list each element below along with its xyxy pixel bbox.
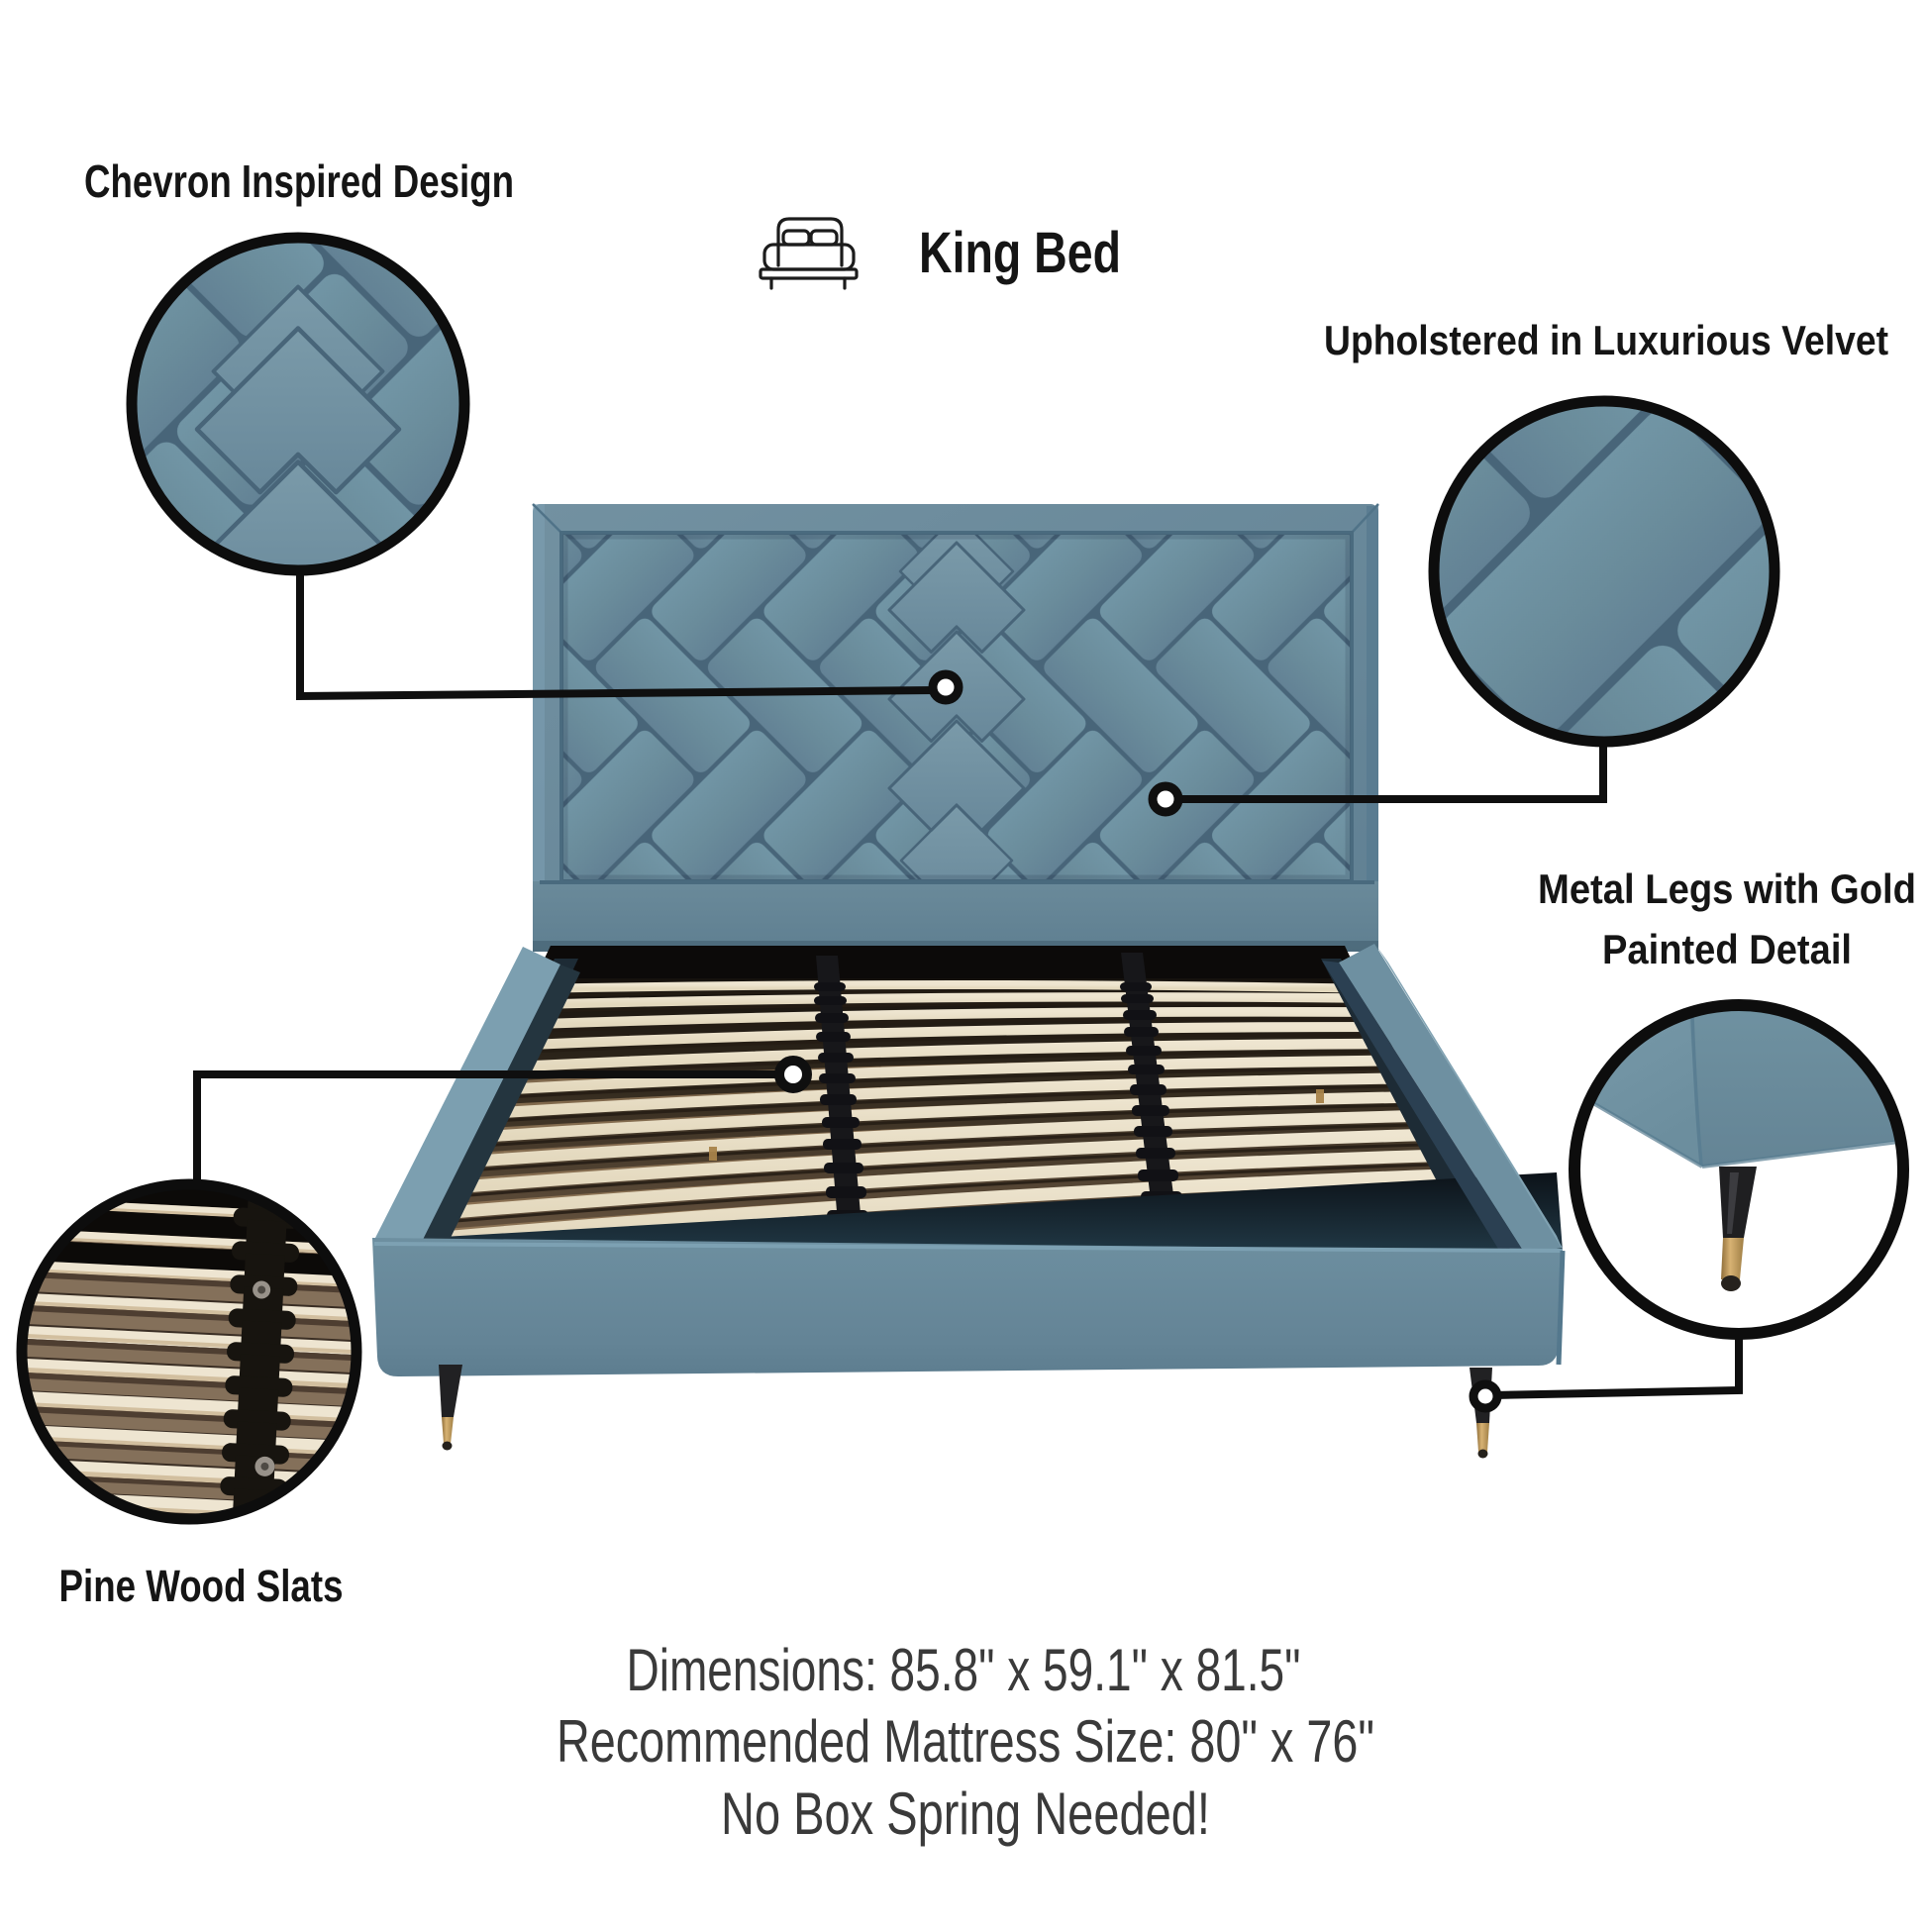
svg-text:Recommended Mattress Size: 80": Recommended Mattress Size: 80" x 76"	[557, 1708, 1374, 1775]
svg-text:Dimensions: 85.8" x 59.1" x 81: Dimensions: 85.8" x 59.1" x 81.5"	[627, 1637, 1301, 1703]
svg-text:Metal Legs with Gold: Metal Legs with Gold	[1538, 865, 1916, 912]
svg-text:Chevron Inspired Design: Chevron Inspired Design	[84, 155, 514, 207]
svg-text:No Box Spring Needed!: No Box Spring Needed!	[721, 1780, 1210, 1847]
svg-text:Pine Wood Slats: Pine Wood Slats	[59, 1561, 344, 1611]
svg-text:Painted Detail: Painted Detail	[1602, 926, 1852, 972]
svg-text:Upholstered in Luxurious Velve: Upholstered in Luxurious Velvet	[1324, 317, 1888, 363]
svg-text:King Bed: King Bed	[919, 221, 1121, 285]
